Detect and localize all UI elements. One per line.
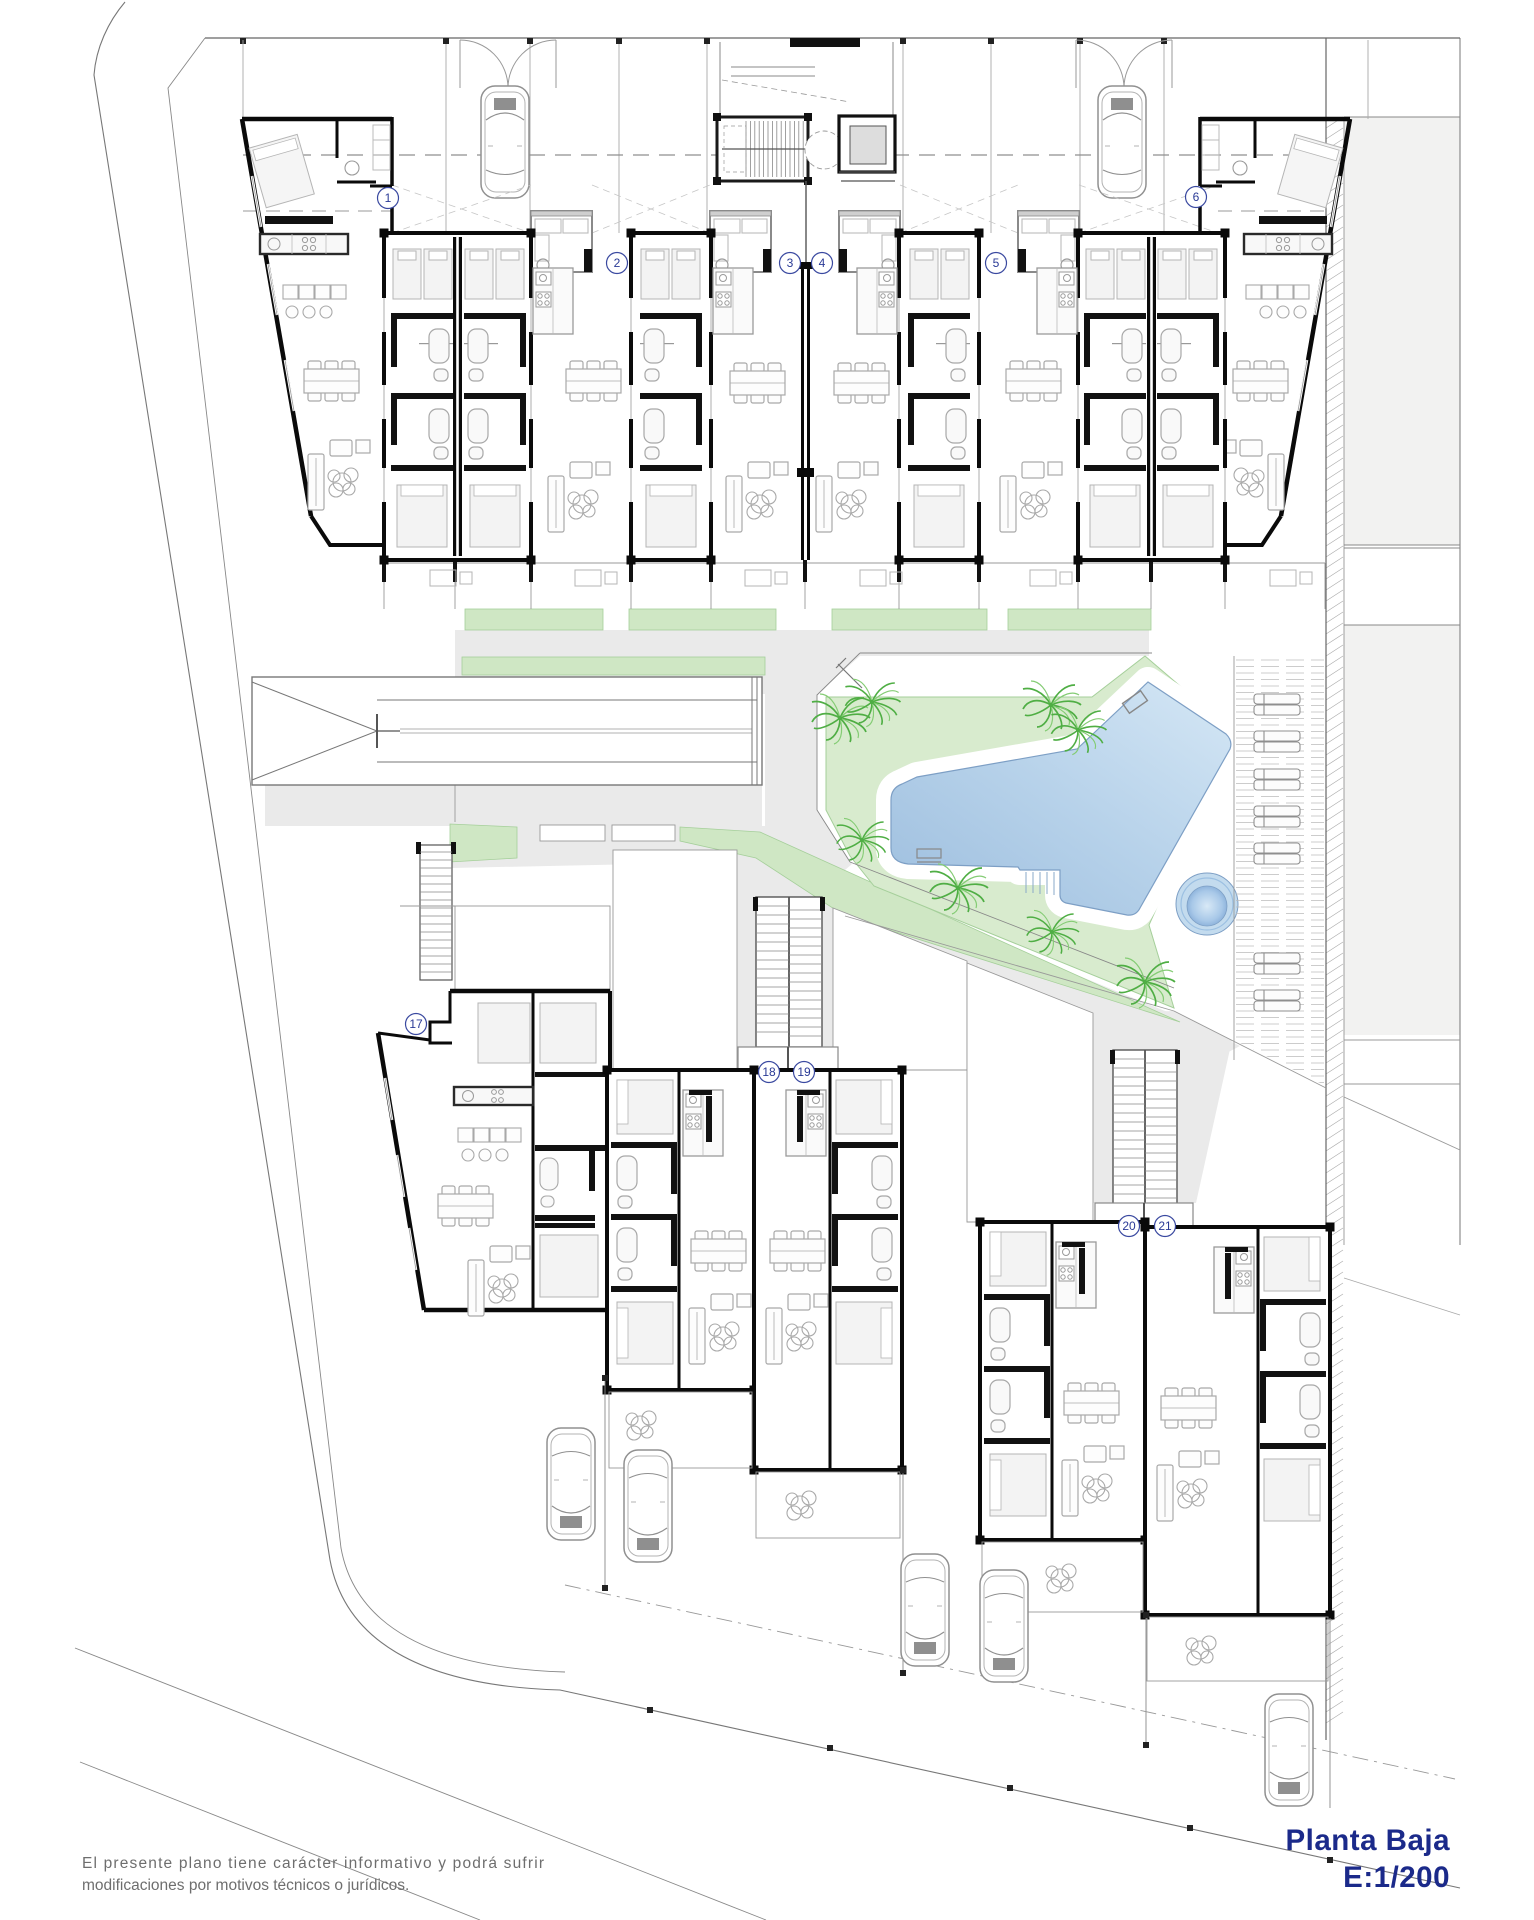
svg-text:3: 3 — [787, 256, 794, 270]
svg-text:Planta Baja: Planta Baja — [1285, 1824, 1450, 1857]
svg-text:21: 21 — [1158, 1219, 1172, 1233]
svg-text:El presente plano tiene ca: El presente plano tiene carácter informa… — [82, 1855, 544, 1872]
svg-text:2: 2 — [614, 256, 621, 270]
svg-text:1: 1 — [385, 191, 392, 205]
svg-text:17: 17 — [409, 1017, 423, 1031]
svg-text:20: 20 — [1122, 1219, 1136, 1233]
svg-text:18: 18 — [762, 1065, 776, 1079]
svg-text:19: 19 — [797, 1065, 811, 1079]
svg-text:6: 6 — [1193, 190, 1200, 204]
svg-text:modificaciones por motivos téc: modificaciones por motivos técnicos o ju… — [82, 1877, 409, 1894]
svg-text:4: 4 — [819, 256, 826, 270]
svg-text:E:1/200: E:1/200 — [1343, 1861, 1450, 1894]
svg-text:5: 5 — [993, 256, 1000, 270]
